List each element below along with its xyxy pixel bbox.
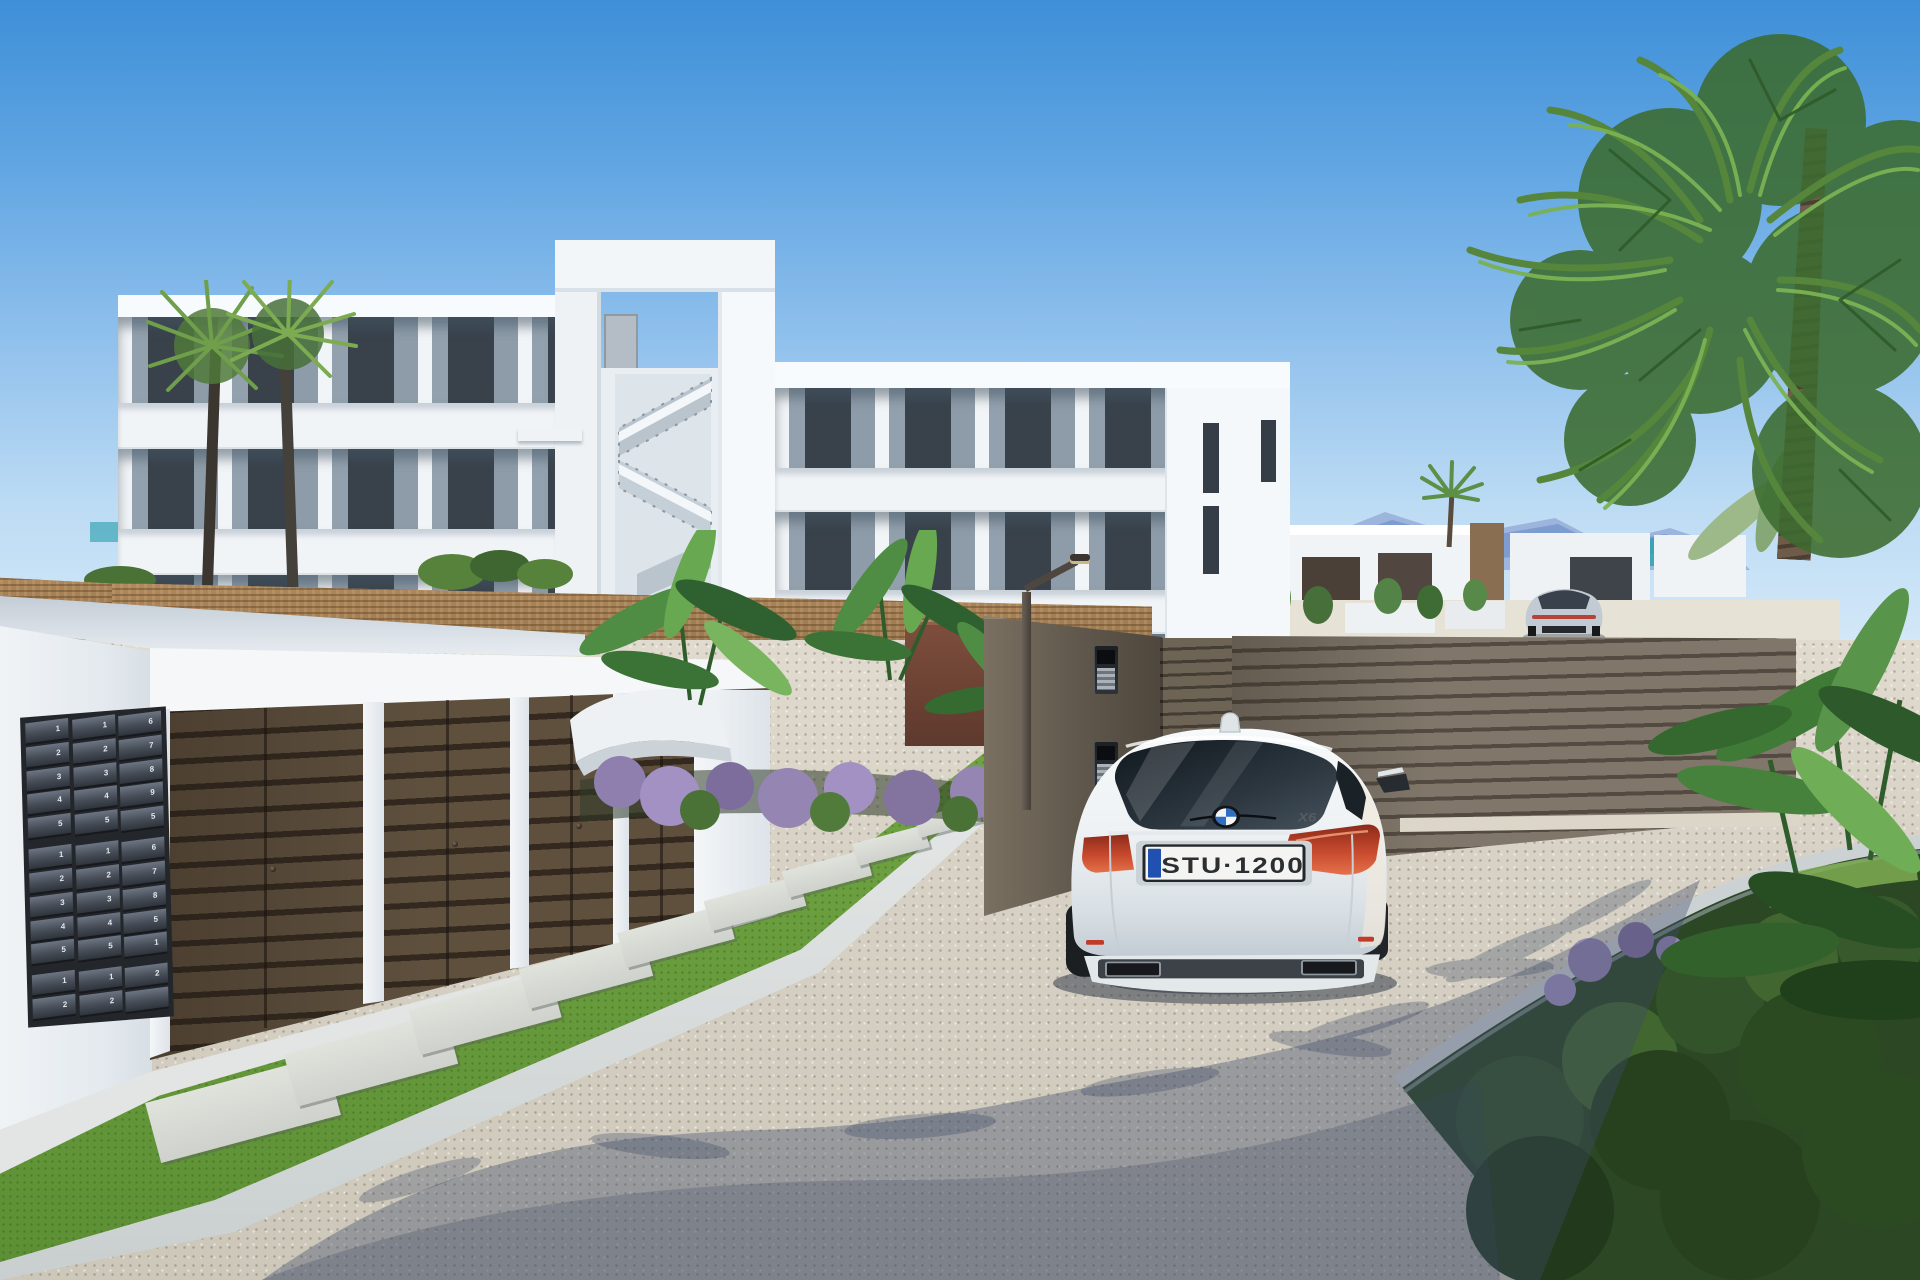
shark-fin-antenna (1220, 713, 1240, 732)
building-gable-end (1165, 388, 1290, 644)
mailbox-cell: 6 (118, 711, 161, 738)
door-knob (452, 841, 458, 847)
exhaust-tip (1302, 961, 1356, 975)
left-taillight (1082, 834, 1134, 872)
door-knob (270, 866, 276, 872)
bmw-roundel-icon (1212, 806, 1240, 828)
mailbox-cell: 1 (124, 932, 167, 959)
reflector (1358, 937, 1374, 942)
mailbox-column: 123451234512 (72, 715, 122, 1018)
mailbox-cell: 5 (28, 813, 71, 840)
mailbox-cell: 1 (32, 970, 75, 997)
mailbox-cell: 2 (79, 990, 122, 1017)
street-lamp-pole (1022, 592, 1031, 810)
mailbox-cell: 2 (29, 868, 72, 895)
garage-pillar (510, 697, 529, 969)
plate-eu-band (1148, 849, 1161, 878)
mailbox-cell: 8 (123, 884, 166, 911)
architectural-render-scene: 12345123451212345123451267895678512 (0, 0, 1920, 1280)
mailbox-cell: 7 (122, 861, 165, 888)
mailbox-column: 67895678512 (118, 712, 168, 1015)
license-plate: STU·1200 (1144, 846, 1305, 881)
mailbox-cell: 2 (32, 994, 75, 1021)
mailbox-cell: 5 (31, 939, 74, 966)
mailbox-cell: 7 (119, 734, 162, 761)
roof-fascia (775, 362, 1290, 390)
exhaust-tip (1106, 962, 1160, 976)
mailbox-grid: 12345123451212345123451267895678512 (20, 706, 174, 1027)
mailbox-cell: 2 (76, 864, 119, 891)
mailbox-cell: 3 (30, 892, 73, 919)
mailbox-cell: 5 (78, 936, 121, 963)
mailbox-cell: 2 (125, 963, 168, 990)
white-suv-car: STU·1200 X6 (1040, 700, 1420, 1020)
license-plate-text: STU·1200 (1161, 853, 1305, 878)
reflector (1086, 940, 1104, 945)
mailbox-cell: 1 (75, 840, 118, 867)
mailbox-cell: 1 (72, 714, 115, 741)
mailbox-cell: 1 (78, 966, 121, 993)
mailbox-cell: 1 (25, 718, 68, 745)
side-mirror (1376, 774, 1410, 793)
background-car (1516, 584, 1612, 644)
door-seam (446, 700, 449, 986)
door-seam (264, 708, 267, 1028)
mailbox-cell: 2 (72, 738, 115, 765)
mailbox-cell: 5 (74, 810, 117, 837)
large-palm-crown (1280, 0, 1920, 580)
mailbox-cell: 3 (76, 888, 119, 915)
mailbox-cell: 1 (29, 844, 72, 871)
video-intercom-unit (1094, 646, 1118, 694)
mailbox-column: 123451234512 (25, 719, 75, 1022)
garage-pillar (363, 702, 384, 1004)
mailbox-cell: 5 (121, 806, 164, 833)
mailbox-cell: 2 (26, 742, 69, 769)
street-lamp-head (1070, 554, 1090, 564)
mailbox-cell: 6 (122, 837, 165, 864)
mailbox-cell (126, 987, 169, 1014)
model-badge: X6 (1297, 811, 1317, 824)
